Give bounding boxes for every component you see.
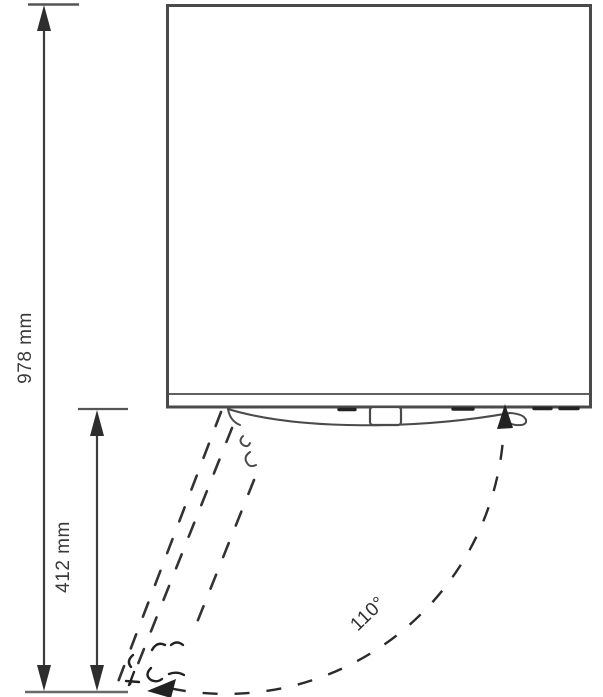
diagram-canvas: 978 mm 412 mm 110° (0, 0, 603, 697)
door-handle-closed (370, 407, 401, 425)
dimension-label-978: 978 mm (15, 312, 36, 384)
handle-squiggle (126, 681, 139, 682)
dimension-label-412: 412 mm (53, 521, 74, 593)
door-swing-diagram: 978 mm 412 mm 110° (0, 0, 603, 697)
cabinet-outline (168, 6, 591, 408)
cabinet-body (168, 6, 591, 408)
